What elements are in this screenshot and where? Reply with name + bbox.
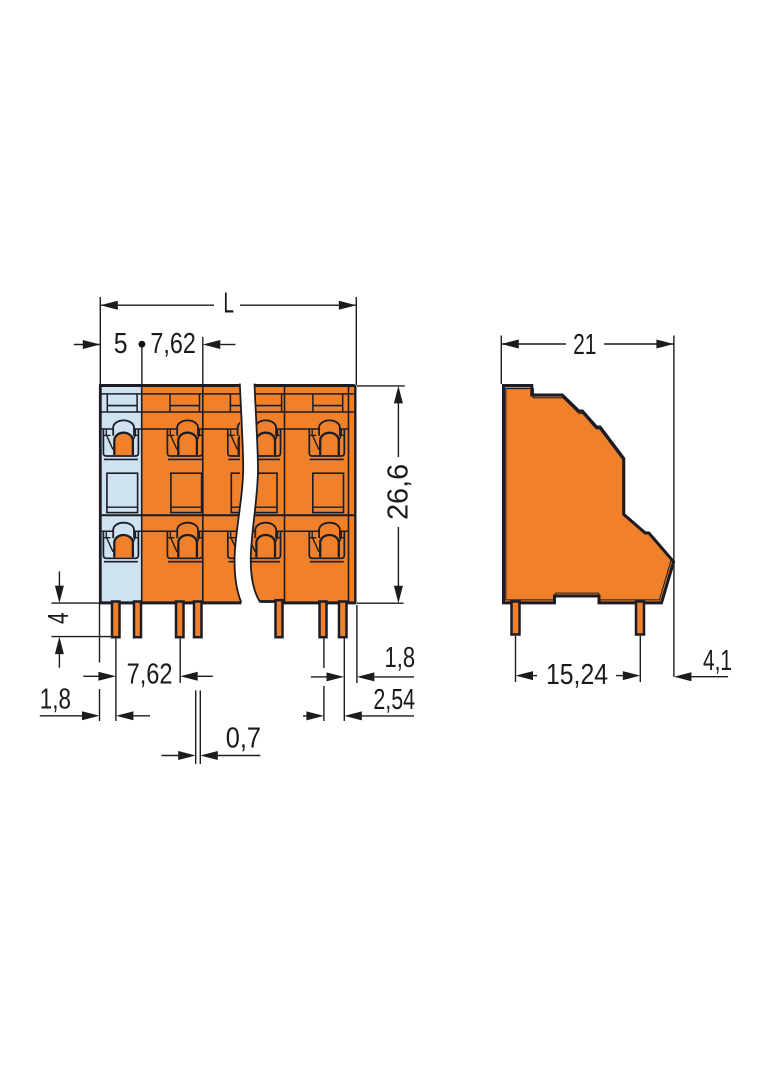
svg-text:7,62: 7,62 xyxy=(127,659,173,691)
svg-text:2,54: 2,54 xyxy=(373,684,415,716)
svg-text:7,62: 7,62 xyxy=(150,328,195,360)
svg-text:15,24: 15,24 xyxy=(546,659,608,691)
svg-text:L: L xyxy=(223,288,234,320)
svg-text:4,1: 4,1 xyxy=(703,645,732,677)
svg-text:4: 4 xyxy=(43,612,75,624)
svg-text:21: 21 xyxy=(573,329,596,361)
svg-text:0,7: 0,7 xyxy=(226,722,261,754)
svg-text:1,8: 1,8 xyxy=(40,684,71,716)
svg-text:1,8: 1,8 xyxy=(385,642,416,674)
svg-text:5: 5 xyxy=(114,328,128,360)
svg-text:26,6: 26,6 xyxy=(383,464,415,520)
